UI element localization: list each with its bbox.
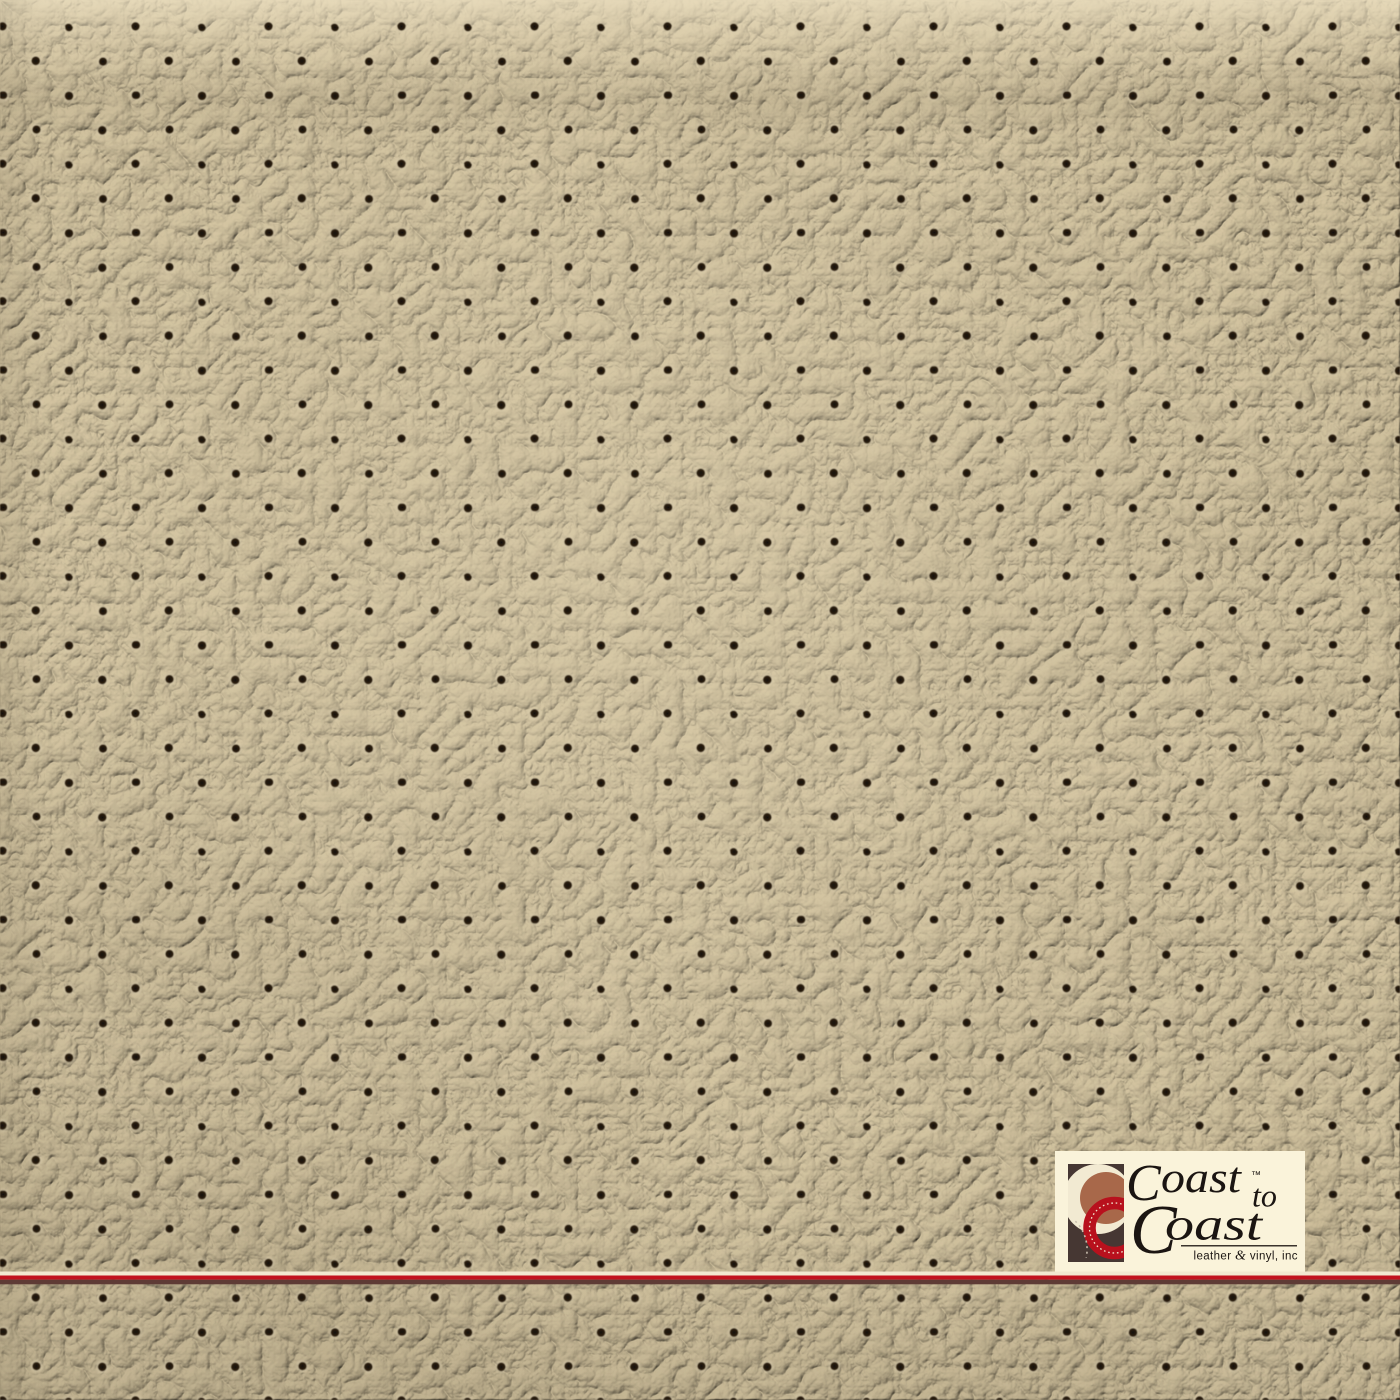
svg-text:leather & vinyl, inc: leather & vinyl, inc bbox=[1194, 1249, 1298, 1264]
svg-text:oast: oast bbox=[1165, 1199, 1264, 1250]
svg-text:™: ™ bbox=[1251, 1170, 1261, 1181]
